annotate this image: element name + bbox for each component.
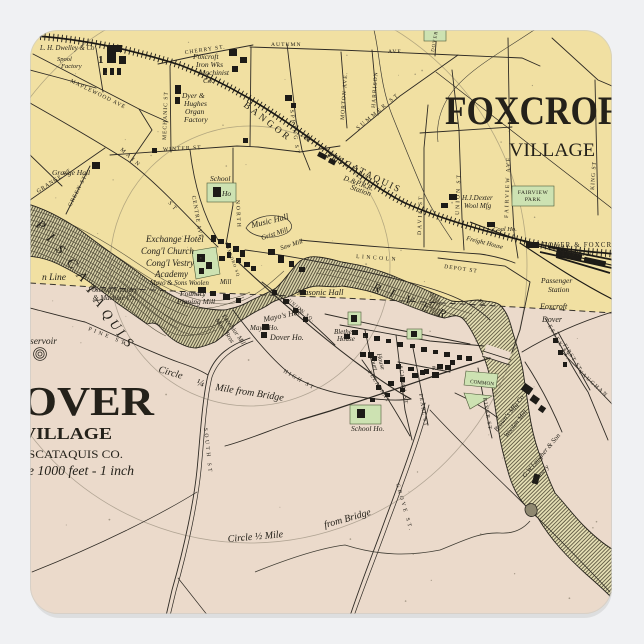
svg-text:School Ho.: School Ho. [351, 424, 384, 433]
svg-text:servoir: servoir [30, 337, 57, 347]
svg-text:L. H. Dwelley & Co: L. H. Dwelley & Co [39, 45, 95, 52]
svg-text:Coal Ho.: Coal Ho. [493, 226, 517, 233]
svg-text:Masonic Hall: Masonic Hall [296, 287, 344, 297]
svg-text:Exchange Hotel: Exchange Hotel [145, 234, 204, 244]
svg-text:Academy: Academy [154, 269, 188, 279]
svg-text:Grange Hall: Grange Hall [52, 168, 90, 177]
svg-text:Factory: Factory [60, 63, 82, 70]
svg-text:Spool: Spool [57, 56, 72, 63]
svg-text:Foxcroft: Foxcroft [539, 302, 568, 311]
svg-text:1: 1 [98, 54, 104, 66]
svg-text:House: House [336, 335, 355, 343]
svg-text:Cong'l Church: Cong'l Church [141, 246, 194, 256]
svg-text:VILLAGE: VILLAGE [22, 424, 112, 443]
svg-text:P.O.: P.O. [432, 365, 443, 372]
svg-text:Mill: Mill [219, 279, 231, 286]
svg-text:Dover: Dover [541, 315, 563, 324]
svg-text:Mayo & Sons Woolen: Mayo & Sons Woolen [149, 280, 209, 287]
svg-text:n Line: n Line [42, 273, 66, 283]
svg-text:Co.: Co. [203, 76, 214, 85]
svg-text:H.J.Dexter: H.J.Dexter [461, 194, 493, 202]
svg-text:Passenger: Passenger [540, 276, 572, 285]
svg-text:Planing Mill: Planing Mill [176, 297, 215, 306]
svg-text:Foxcroft Foundry: Foxcroft Foundry [87, 286, 139, 294]
svg-text:Wool Mfg: Wool Mfg [464, 202, 492, 210]
svg-text:le 1000 feet - 1 inch: le 1000 feet - 1 inch [24, 463, 134, 478]
svg-text:SCATAQUIS CO.: SCATAQUIS CO. [28, 449, 123, 461]
svg-text:FAIRVIEW: FAIRVIEW [518, 190, 549, 196]
svg-text:Factory: Factory [183, 115, 208, 124]
svg-text:School: School [210, 174, 230, 183]
svg-text:AUTUMN: AUTUMN [271, 42, 302, 48]
svg-text:May's Ho.: May's Ho. [249, 324, 279, 332]
svg-text:STATION: STATION [556, 251, 592, 258]
svg-text:VILLAGE: VILLAGE [509, 140, 595, 161]
svg-text:Cong'l Vestry: Cong'l Vestry [146, 258, 194, 268]
svg-text:Ho: Ho [221, 189, 231, 198]
svg-text:AVE.: AVE. [388, 49, 404, 55]
svg-text:& Machine Co.: & Machine Co. [93, 294, 137, 302]
svg-text:Dover Ho.: Dover Ho. [269, 333, 304, 342]
svg-text:Station: Station [548, 285, 570, 294]
svg-text:PARK: PARK [525, 197, 541, 203]
